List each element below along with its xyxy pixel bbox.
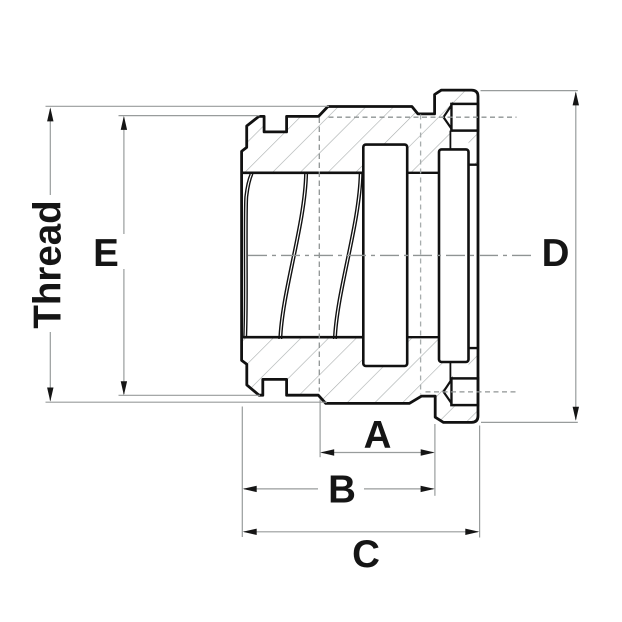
svg-text:E: E xyxy=(93,232,119,275)
svg-text:A: A xyxy=(364,414,392,457)
svg-text:Thread: Thread xyxy=(27,200,70,328)
svg-text:C: C xyxy=(352,533,380,576)
svg-text:B: B xyxy=(328,469,356,512)
svg-text:D: D xyxy=(542,232,570,275)
